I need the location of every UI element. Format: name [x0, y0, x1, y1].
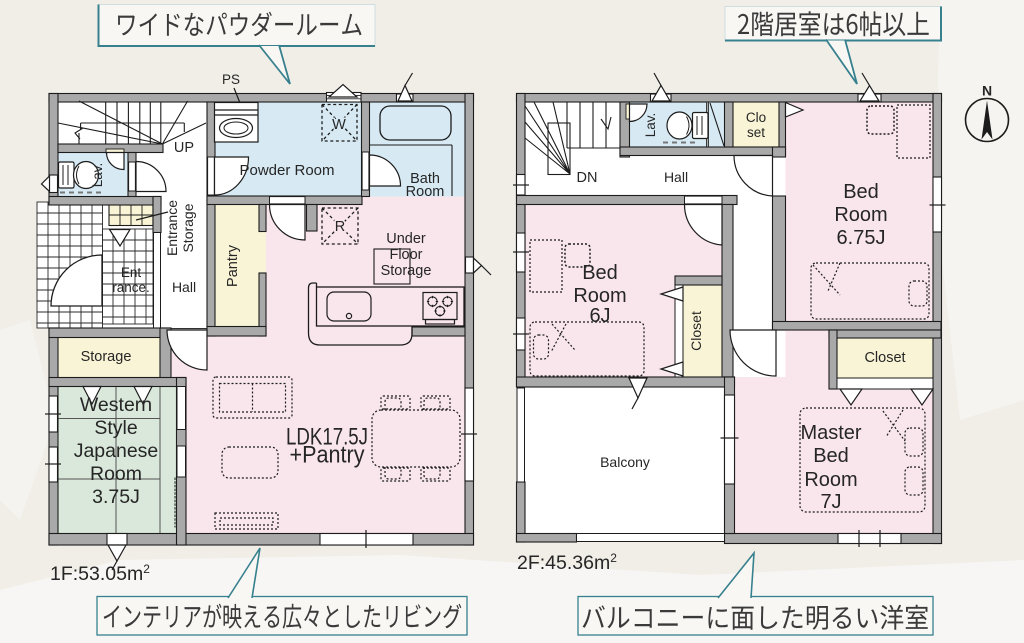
svg-text:6.75J: 6.75J	[837, 227, 886, 249]
svg-text:Powder Room: Powder Room	[239, 162, 334, 179]
svg-text:Under: Under	[386, 231, 426, 247]
svg-text:+Pantry: +Pantry	[290, 442, 365, 469]
svg-text:Entrance: Entrance	[164, 200, 180, 256]
svg-text:Storage: Storage	[381, 263, 432, 279]
svg-text:Balcony: Balcony	[600, 454, 650, 470]
svg-text:Room: Room	[573, 285, 626, 307]
svg-text:7J: 7J	[820, 491, 841, 513]
svg-text:2F:45.36m2: 2F:45.36m2	[517, 551, 617, 574]
svg-text:Room: Room	[90, 463, 142, 485]
svg-text:Clo: Clo	[746, 110, 766, 125]
svg-text:Ent: Ent	[121, 265, 142, 280]
svg-text:W: W	[332, 117, 346, 133]
svg-text:PS: PS	[222, 72, 240, 87]
svg-text:Bed: Bed	[843, 181, 879, 203]
svg-text:Hall: Hall	[664, 169, 688, 185]
svg-text:3.75J: 3.75J	[92, 486, 140, 508]
svg-text:Hall: Hall	[172, 279, 196, 295]
svg-text:Lav.: Lav.	[643, 113, 658, 138]
svg-text:DN: DN	[577, 170, 598, 186]
svg-text:Closet: Closet	[688, 311, 704, 351]
svg-text:N: N	[982, 83, 992, 99]
svg-text:Bed: Bed	[582, 262, 618, 284]
svg-text:R: R	[335, 219, 345, 235]
svg-text:Storage: Storage	[81, 349, 132, 365]
svg-text:Master: Master	[800, 422, 861, 444]
svg-text:Closet: Closet	[864, 350, 905, 366]
svg-text:rance.: rance.	[112, 280, 150, 295]
svg-text:6J: 6J	[589, 305, 610, 327]
svg-text:Style: Style	[94, 417, 137, 439]
svg-text:Pantry: Pantry	[225, 244, 241, 287]
svg-text:set: set	[747, 125, 765, 140]
svg-text:Floor: Floor	[389, 247, 422, 263]
svg-text:UP: UP	[174, 140, 194, 156]
svg-text:Bed: Bed	[813, 445, 849, 467]
svg-text:Japanese: Japanese	[74, 440, 159, 462]
svg-text:Western: Western	[80, 394, 152, 416]
svg-text:Room: Room	[834, 204, 887, 226]
svg-text:Lav.: Lav.	[90, 163, 105, 188]
svg-text:Room: Room	[406, 184, 445, 200]
svg-text:Room: Room	[804, 469, 857, 491]
svg-text:Storage: Storage	[180, 203, 196, 252]
svg-text:1F:53.05m2: 1F:53.05m2	[50, 562, 150, 585]
